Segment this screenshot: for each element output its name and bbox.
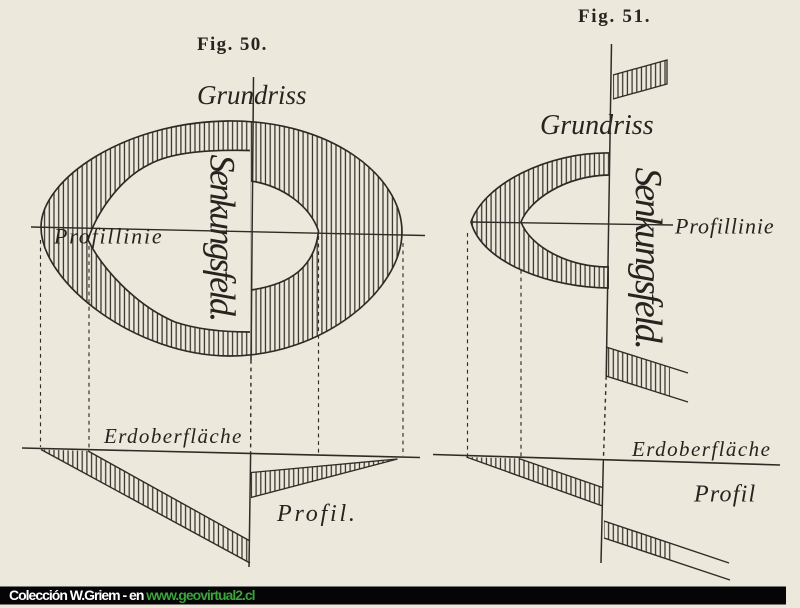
svg-text:Fig. 50.: Fig. 50.	[197, 34, 268, 55]
svg-text:Profil: Profil	[693, 482, 756, 508]
svg-text:Colección W.Griem - en www.geo: Colección W.Griem - en www.geovirtual2.c…	[9, 587, 255, 603]
svg-text:Profillinie: Profillinie	[53, 224, 163, 249]
svg-text:Grundriss: Grundriss	[197, 80, 307, 110]
svg-text:Grundriss: Grundriss	[540, 110, 654, 141]
svg-text:Senkungsfeld.: Senkungsfeld.	[627, 168, 669, 348]
svg-text:Profillinie: Profillinie	[674, 214, 775, 239]
svg-text:Senkungsfeld.: Senkungsfeld.	[203, 155, 243, 320]
svg-text:Profil.: Profil.	[276, 501, 358, 527]
svg-text:Erdoberfläche: Erdoberfläche	[103, 424, 243, 448]
svg-text:Fig. 51.: Fig. 51.	[578, 6, 651, 27]
svg-text:Erdoberfläche: Erdoberfläche	[631, 437, 771, 461]
